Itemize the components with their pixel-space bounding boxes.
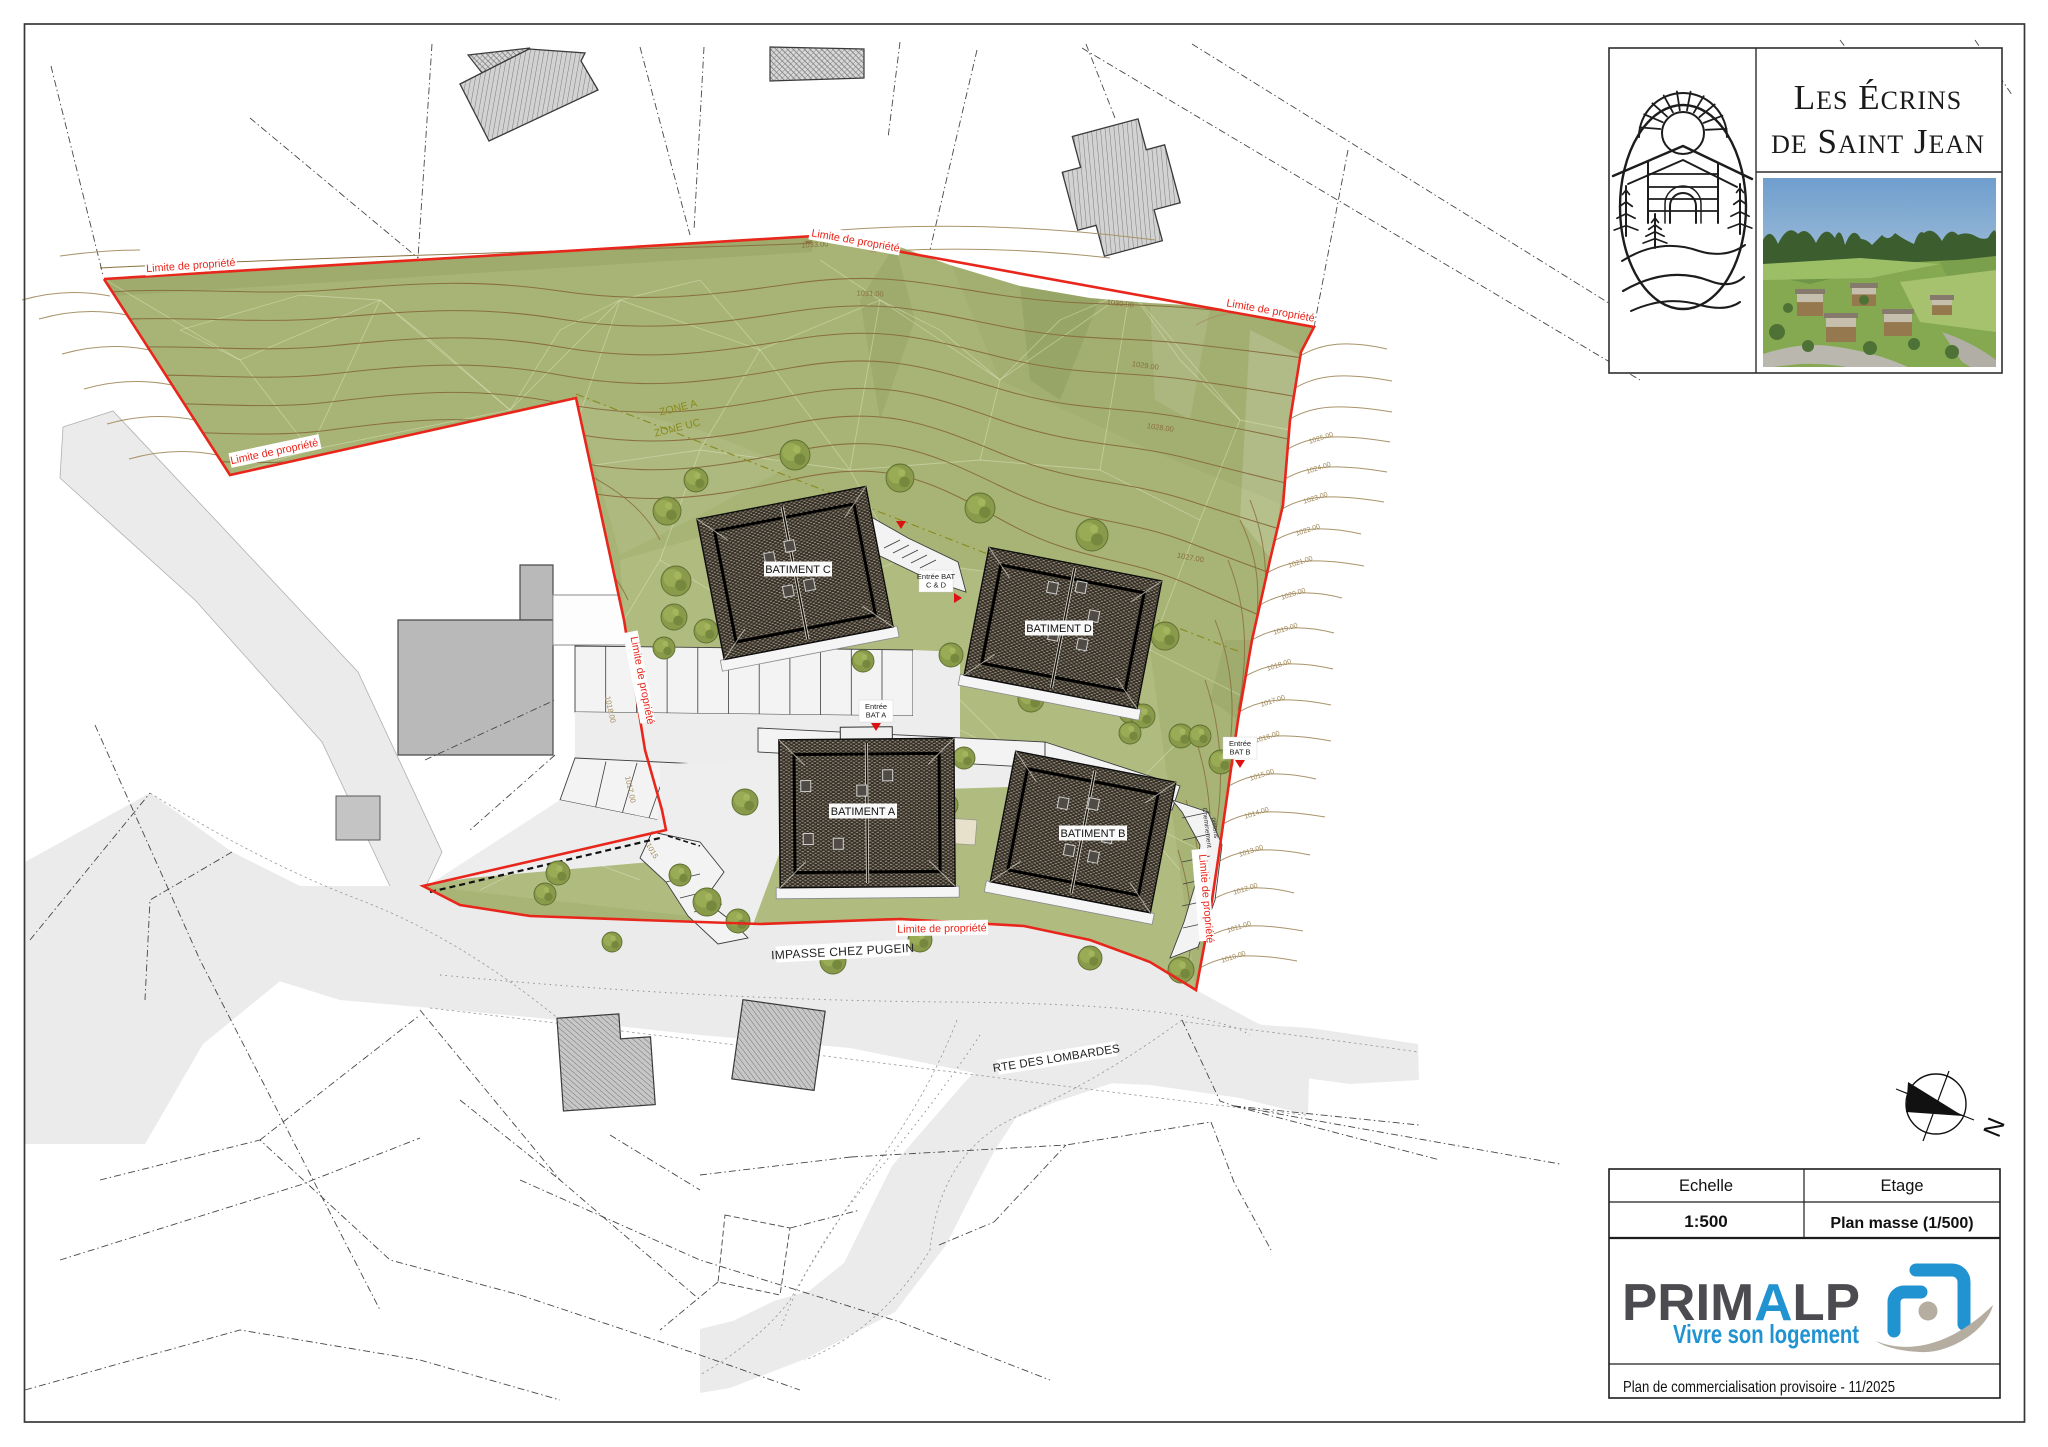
svg-text:Echelle: Echelle: [1679, 1177, 1733, 1195]
svg-text:Limite de propriété: Limite de propriété: [897, 922, 987, 936]
svg-text:Plan de commercialisation prov: Plan de commercialisation provisoire - 1…: [1623, 1379, 1895, 1396]
svg-text:BATIMENT A: BATIMENT A: [831, 806, 896, 818]
svg-text:BATIMENT B: BATIMENT B: [1061, 828, 1126, 840]
svg-text:Etage: Etage: [1880, 1177, 1923, 1195]
svg-text:BATIMENT D: BATIMENT D: [1026, 623, 1092, 635]
svg-text:1031.00: 1031.00: [856, 289, 883, 299]
svg-text:1:500: 1:500: [1684, 1212, 1727, 1231]
svg-text:BATIMENT C: BATIMENT C: [765, 564, 831, 576]
svg-text:BAT B: BAT B: [1230, 748, 1251, 757]
svg-text:C & D: C & D: [926, 581, 947, 590]
svg-text:BAT A: BAT A: [866, 711, 887, 720]
svg-text:Plan masse (1/500): Plan masse (1/500): [1830, 1215, 1973, 1232]
svg-text:Vivre son logement: Vivre son logement: [1673, 1319, 1859, 1349]
